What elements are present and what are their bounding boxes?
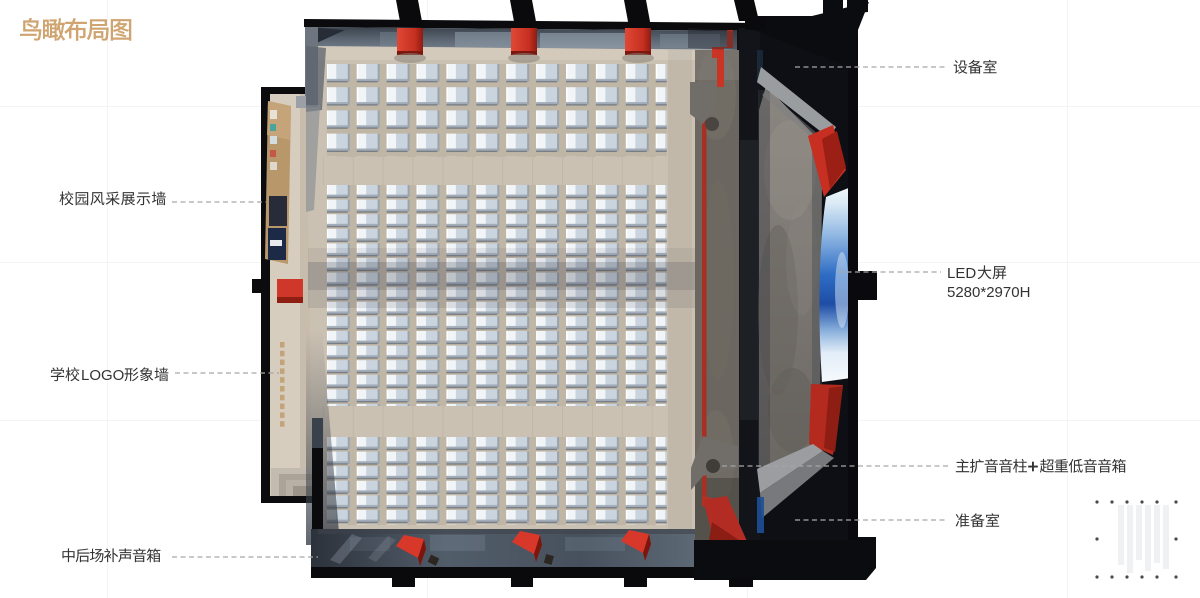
svg-text:LED: LED [947,265,976,282]
svg-text:LOGO: LOGO [81,367,124,384]
svg-text:5280*2970H: 5280*2970H [947,284,1030,301]
